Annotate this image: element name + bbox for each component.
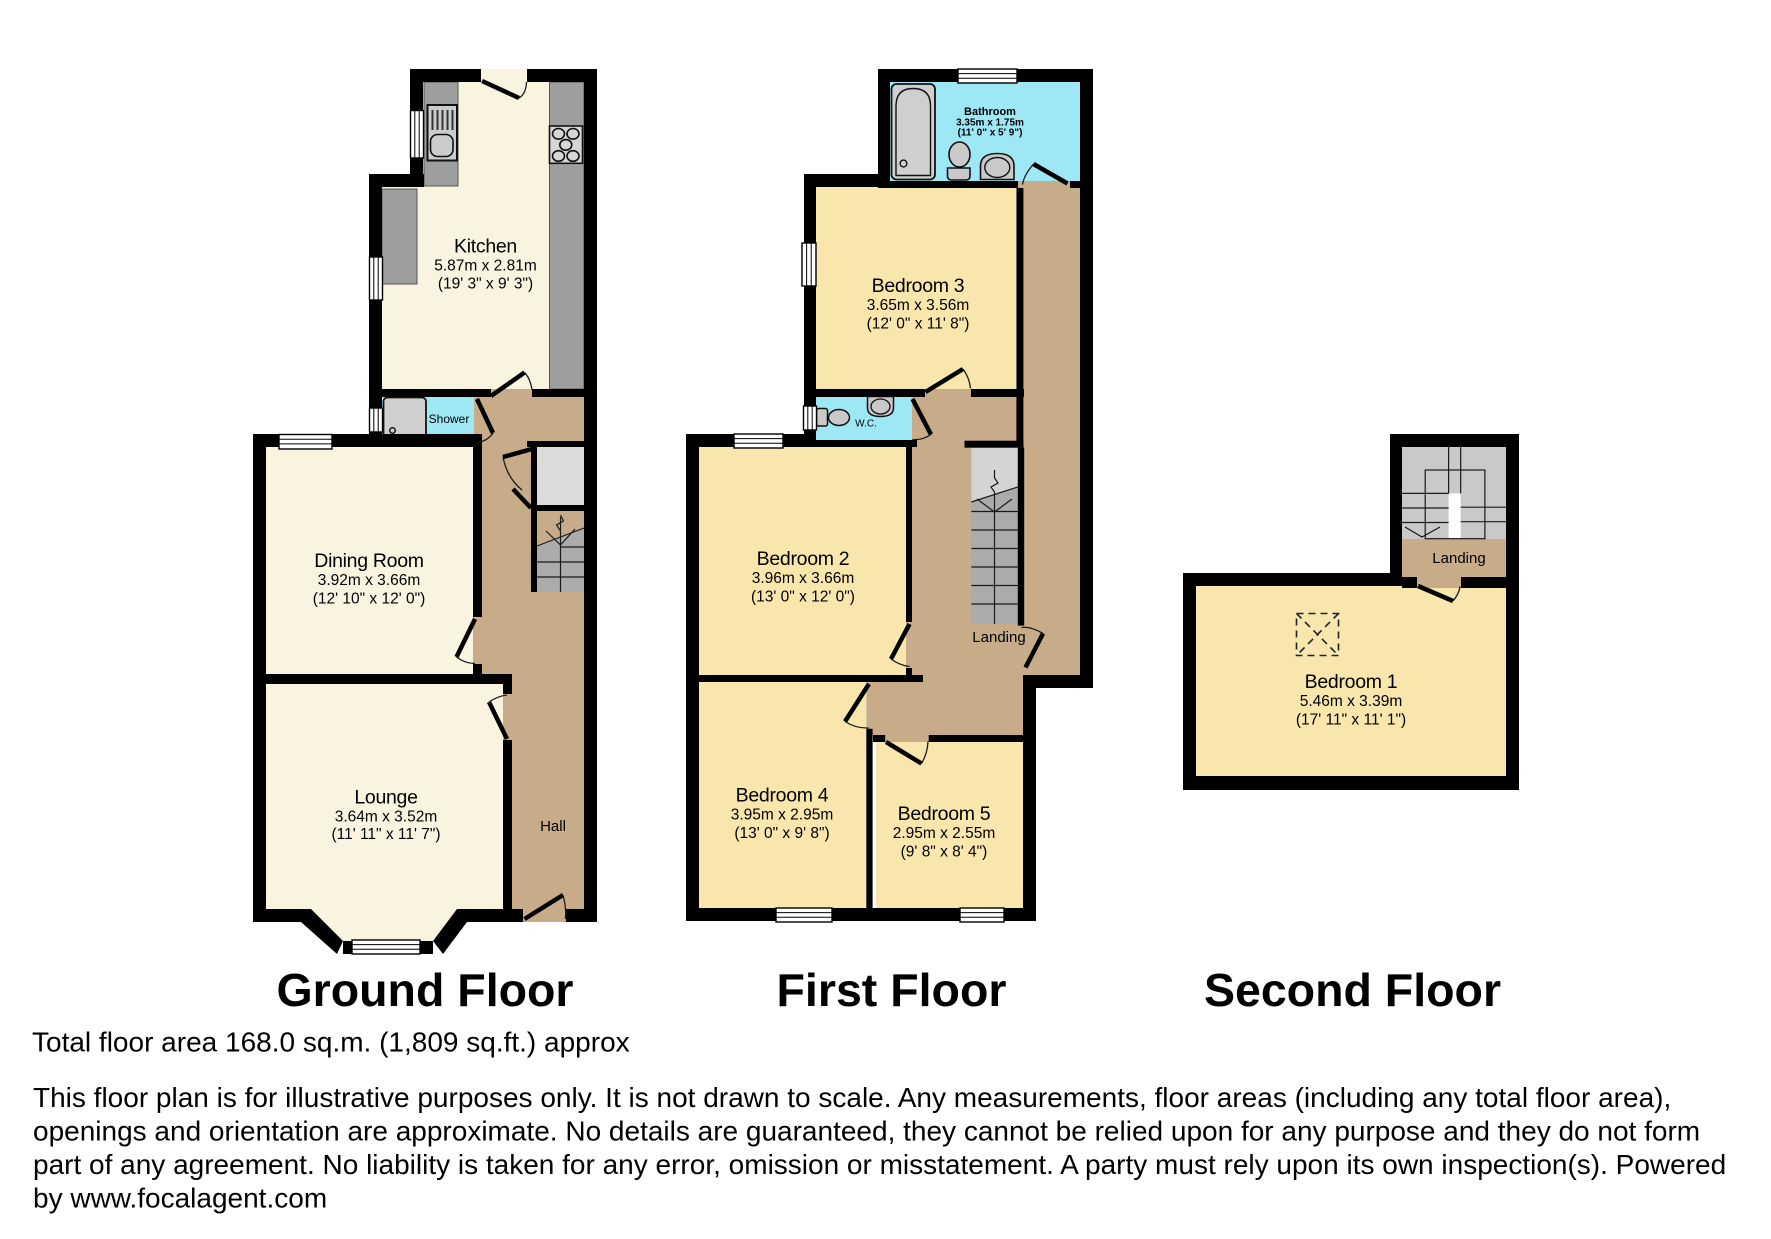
svg-text:Dining Room: Dining Room [314, 550, 423, 572]
svg-text:Bedroom 4: Bedroom 4 [736, 785, 829, 807]
svg-text:5.46m x 3.39m: 5.46m x 3.39m [1300, 693, 1403, 710]
svg-text:3.65m x 3.56m: 3.65m x 3.56m [867, 297, 970, 314]
svg-text:(11' 11" x 11' 7"): (11' 11" x 11' 7") [331, 826, 440, 843]
svg-text:Bedroom 3: Bedroom 3 [872, 275, 965, 297]
svg-text:2.95m x 2.55m: 2.95m x 2.55m [893, 825, 996, 842]
svg-text:Landing: Landing [972, 629, 1025, 646]
svg-text:Kitchen: Kitchen [454, 235, 517, 257]
svg-text:Hall: Hall [540, 818, 566, 835]
svg-text:This floor plan is for illustr: This floor plan is for illustrative purp… [33, 1082, 1671, 1113]
svg-text:(12' 10" x 12' 0"): (12' 10" x 12' 0") [313, 590, 426, 607]
svg-text:3.64m x 3.52m: 3.64m x 3.52m [335, 809, 438, 826]
svg-text:(12' 0" x 11' 8"): (12' 0" x 11' 8") [867, 315, 970, 332]
svg-text:(9' 8" x 8' 4"): (9' 8" x 8' 4") [901, 843, 988, 860]
svg-text:3.92m x 3.66m: 3.92m x 3.66m [318, 572, 421, 589]
svg-text:(19' 3" x 9' 3"): (19' 3" x 9' 3") [438, 276, 533, 293]
svg-text:by www.focalagent.com: by www.focalagent.com [33, 1183, 327, 1214]
svg-text:openings and orientation are a: openings and orientation are approximate… [33, 1116, 1700, 1147]
svg-text:Landing: Landing [1432, 550, 1485, 567]
svg-text:(13' 0" x 9' 8"): (13' 0" x 9' 8") [734, 825, 829, 842]
svg-text:Second Floor: Second Floor [1204, 964, 1501, 1016]
svg-text:part of any agreement. No liab: part of any agreement. No liability is t… [33, 1149, 1726, 1180]
svg-text:(17' 11" x 11' 1"): (17' 11" x 11' 1") [1296, 711, 1406, 728]
svg-text:Shower: Shower [429, 412, 470, 426]
svg-text:Lounge: Lounge [354, 787, 417, 809]
svg-text:5.87m x 2.81m: 5.87m x 2.81m [434, 258, 537, 275]
svg-text:Bathroom: Bathroom [964, 106, 1016, 118]
svg-text:Bedroom 1: Bedroom 1 [1305, 671, 1398, 693]
svg-text:Bedroom 5: Bedroom 5 [898, 803, 991, 825]
svg-text:(13' 0" x 12' 0"): (13' 0" x 12' 0") [751, 588, 855, 605]
svg-text:Ground Floor: Ground Floor [276, 964, 573, 1016]
svg-text:(11' 0" x 5' 9"): (11' 0" x 5' 9") [958, 128, 1023, 139]
svg-text:Total floor area 168.0 sq.m. (: Total floor area 168.0 sq.m. (1,809 sq.f… [32, 1027, 630, 1058]
svg-text:3.95m x 2.95m: 3.95m x 2.95m [731, 807, 834, 824]
svg-text:Bedroom 2: Bedroom 2 [757, 548, 850, 570]
svg-text:3.96m x 3.66m: 3.96m x 3.66m [752, 570, 855, 587]
svg-text:First Floor: First Floor [777, 964, 1007, 1016]
svg-text:W.C.: W.C. [855, 419, 877, 430]
